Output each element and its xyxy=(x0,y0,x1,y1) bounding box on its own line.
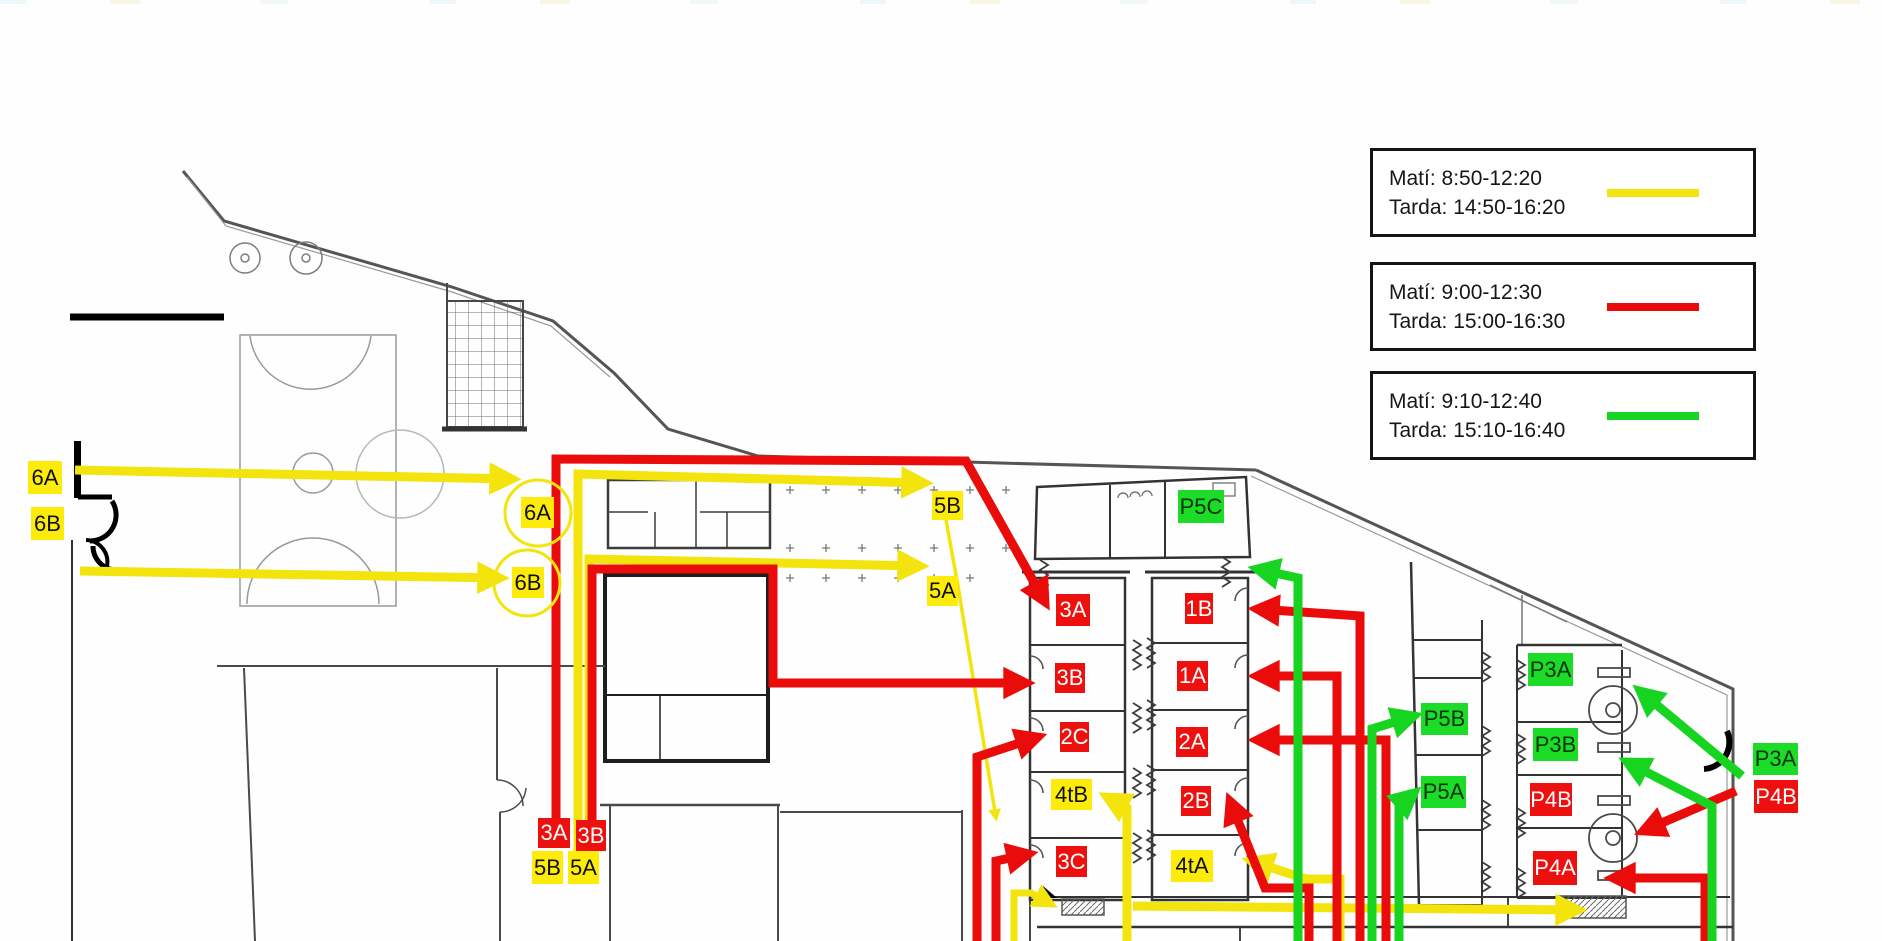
legend-box-green: Matí: 9:10-12:40 Tarda: 15:10-16:40 xyxy=(1370,371,1756,460)
route-4tB xyxy=(1107,797,1127,941)
route-5-branch-thin xyxy=(946,520,996,818)
legend-text: Tarda: 15:10-16:40 xyxy=(1389,416,1753,445)
door-arcs xyxy=(1030,588,1248,858)
left-gate-doors xyxy=(74,441,116,570)
hatched-building xyxy=(442,283,527,429)
legend-green-line-icon xyxy=(1607,412,1699,420)
route-P3-stair xyxy=(1627,762,1712,941)
legend-box-red: Matí: 9:00-12:30 Tarda: 15:00-16:30 xyxy=(1370,262,1756,351)
route-6B xyxy=(80,571,500,578)
p3-wing xyxy=(1517,645,1729,898)
p5-wing xyxy=(1411,562,1567,905)
route-3A xyxy=(556,459,1045,821)
legend-text: Tarda: 14:50-16:20 xyxy=(1389,193,1753,222)
service-building xyxy=(608,480,770,548)
route-P5A xyxy=(1399,793,1414,941)
routes-layer xyxy=(75,459,1742,941)
legend-red-line-icon xyxy=(1607,303,1699,311)
p5c-building xyxy=(1035,477,1250,559)
legend-box-yellow: Matí: 8:50-12:20 Tarda: 14:50-16:20 xyxy=(1370,148,1756,237)
6A-court-circle xyxy=(505,480,571,546)
route-5B xyxy=(578,474,924,854)
classroom-wings xyxy=(1022,572,1256,900)
floor-plan-page: 6A6B6A6B5B5A5B5A4tB4tA3A1B3B1A2C2A2B3C3A… xyxy=(0,0,1882,941)
6B-court-circle xyxy=(494,550,560,616)
gym-building xyxy=(605,575,768,761)
route-5A xyxy=(589,559,920,854)
route-P4A xyxy=(1613,878,1705,941)
legend-text: Tarda: 15:00-16:30 xyxy=(1389,307,1753,336)
legend-yellow-line-icon xyxy=(1607,189,1699,197)
floor-plan xyxy=(0,0,1882,941)
route-6A xyxy=(75,470,512,479)
